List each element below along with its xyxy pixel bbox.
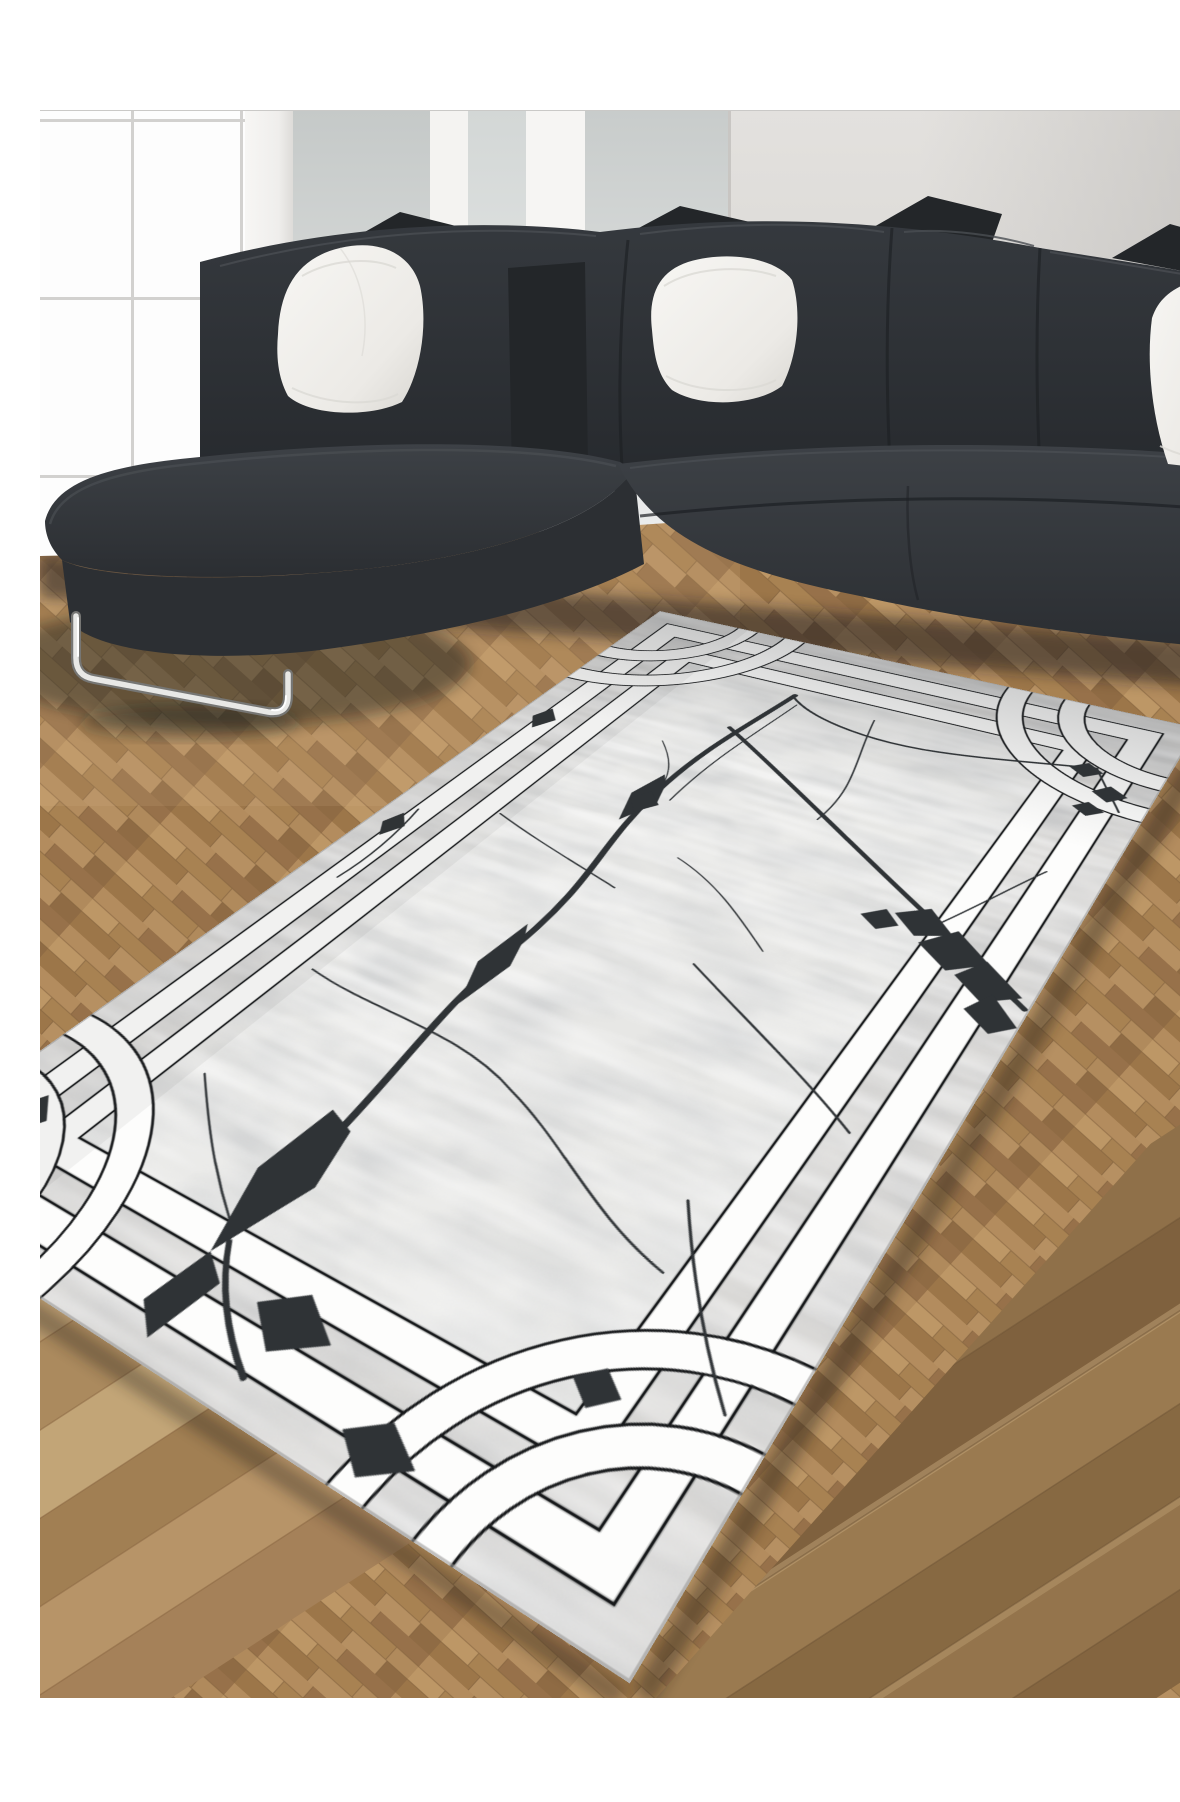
living-room-photo (40, 16, 1180, 1786)
sofa-seats (618, 445, 1180, 648)
white-pillow-center (651, 256, 797, 402)
top-white-strip (40, 16, 1180, 111)
bottom-white-strip (40, 1698, 1180, 1786)
side-cushion (508, 262, 588, 474)
